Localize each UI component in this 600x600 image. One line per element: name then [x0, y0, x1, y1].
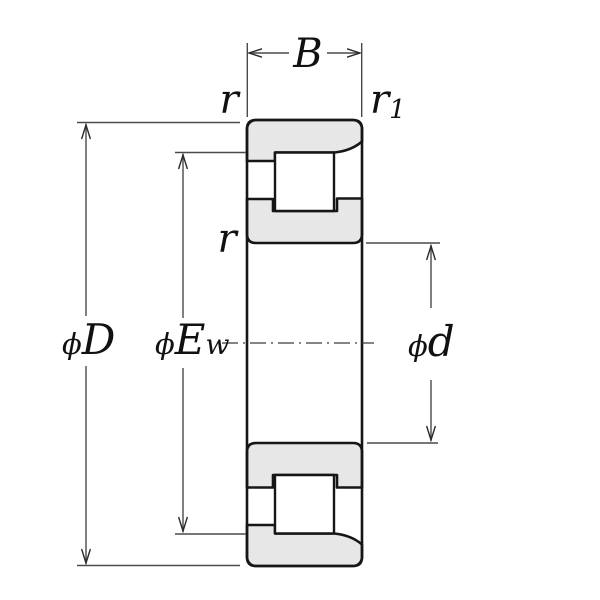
outer-chamfer-right-label: r1 — [370, 77, 406, 125]
bore-diameter-dimension: ϕd — [366, 243, 455, 443]
bearing-diagram-canvas: B r r1 r ϕD ϕEw ϕd — [0, 0, 600, 600]
inner-chamfer-label: r — [217, 216, 239, 262]
raceway-diameter-label: ϕEw — [155, 315, 229, 364]
outer-chamfer-label: r — [219, 77, 241, 123]
outer-diameter-label: ϕD — [62, 315, 115, 364]
bearing-section — [222, 120, 374, 566]
roller-bottom-section — [275, 475, 334, 534]
bore-diameter-label: ϕd — [408, 317, 455, 366]
width-label: B — [292, 31, 322, 77]
bearing-cross-section-diagram: B r r1 r ϕD ϕEw ϕd — [0, 0, 600, 600]
roller-top-section — [275, 153, 334, 212]
width-dimension: B — [247, 31, 361, 117]
